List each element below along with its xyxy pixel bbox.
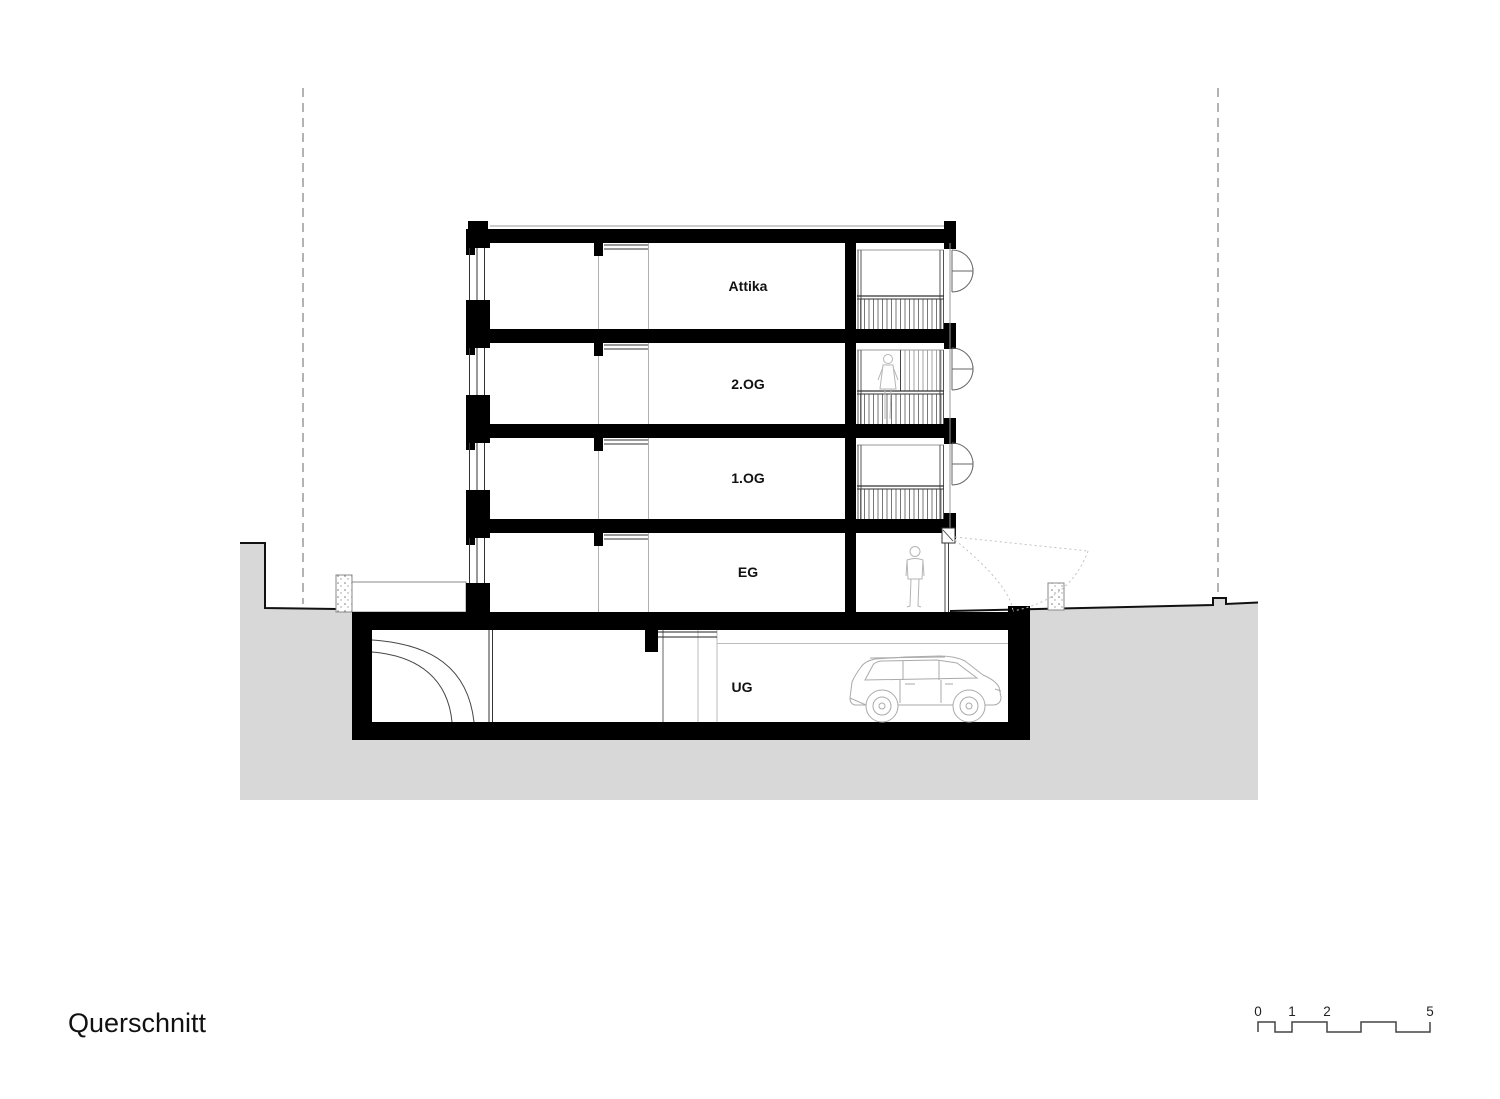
slab-1og-floor (466, 519, 955, 533)
floor-label-attika: Attika (729, 278, 768, 294)
floor-label-eg: EG (738, 564, 758, 580)
scale-label-5: 5 (1426, 1004, 1434, 1019)
roof-slab (466, 229, 955, 243)
ug-level (352, 606, 1030, 740)
floor-label-1og: 1.OG (731, 470, 765, 486)
person-figure-eg (906, 547, 924, 608)
entry-ramp (336, 575, 1064, 612)
eg-loggia (942, 528, 1088, 612)
door-swing-arcs (952, 250, 973, 485)
balconies (857, 223, 956, 539)
ug-bottom-slab (352, 722, 1030, 740)
railing-1og (860, 489, 942, 519)
slat-screen-2og (902, 350, 942, 391)
ug-right-wall (1008, 606, 1030, 740)
scale-bar: 0 1 2 5 (1254, 1004, 1434, 1032)
slab-2og-floor (466, 424, 955, 438)
ug-door-lintel-stub (645, 630, 658, 652)
railing-2og (860, 394, 942, 424)
floor-label-ug: UG (732, 679, 753, 695)
slab-attika-floor (466, 329, 955, 343)
drawing-title: Querschnitt (68, 1008, 207, 1038)
parapet-left (468, 221, 488, 230)
scale-label-2: 2 (1323, 1004, 1331, 1019)
ug-left-wall (352, 612, 372, 740)
eg-door-swing-dotted (955, 537, 1088, 611)
scale-label-1: 1 (1288, 1004, 1296, 1019)
floor-label-2og: 2.OG (731, 376, 765, 392)
architectural-section-sheet: Attika 2.OG 1.OG EG UG Querschnitt 0 1 2… (0, 0, 1500, 1099)
ug-ceiling-slab (352, 612, 1030, 630)
railing-attika (860, 299, 942, 329)
scale-label-0: 0 (1254, 1004, 1262, 1019)
scale-bar-shape (1258, 1022, 1430, 1032)
